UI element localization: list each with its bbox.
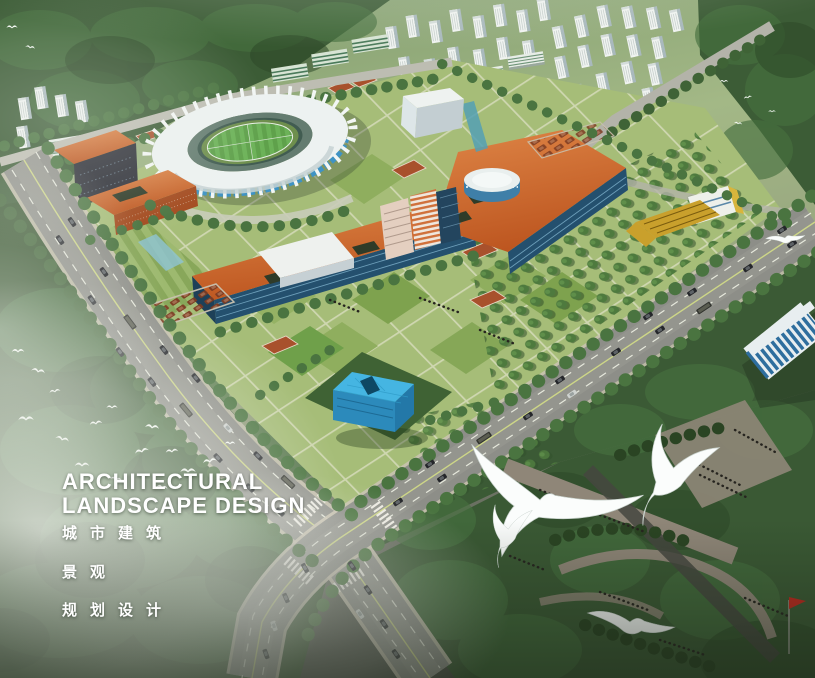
headline-en-line1: ARCHITECTURAL — [62, 470, 305, 494]
round-drum-hall — [464, 168, 520, 202]
subtitle-cn-city-architecture: 城市建筑 — [62, 526, 305, 542]
title-overlay: ARCHITECTURAL LANDSCAPE DESIGN 城市建筑 景观 规… — [62, 470, 305, 619]
aerial-rendering-poster: ARCHITECTURAL LANDSCAPE DESIGN 城市建筑 景观 规… — [0, 0, 815, 678]
subtitle-cn-landscape: 景观 — [62, 565, 305, 581]
subtitle-cn-planning-design: 规划设计 — [62, 603, 305, 619]
headline-en-line2: LANDSCAPE DESIGN — [62, 494, 305, 518]
